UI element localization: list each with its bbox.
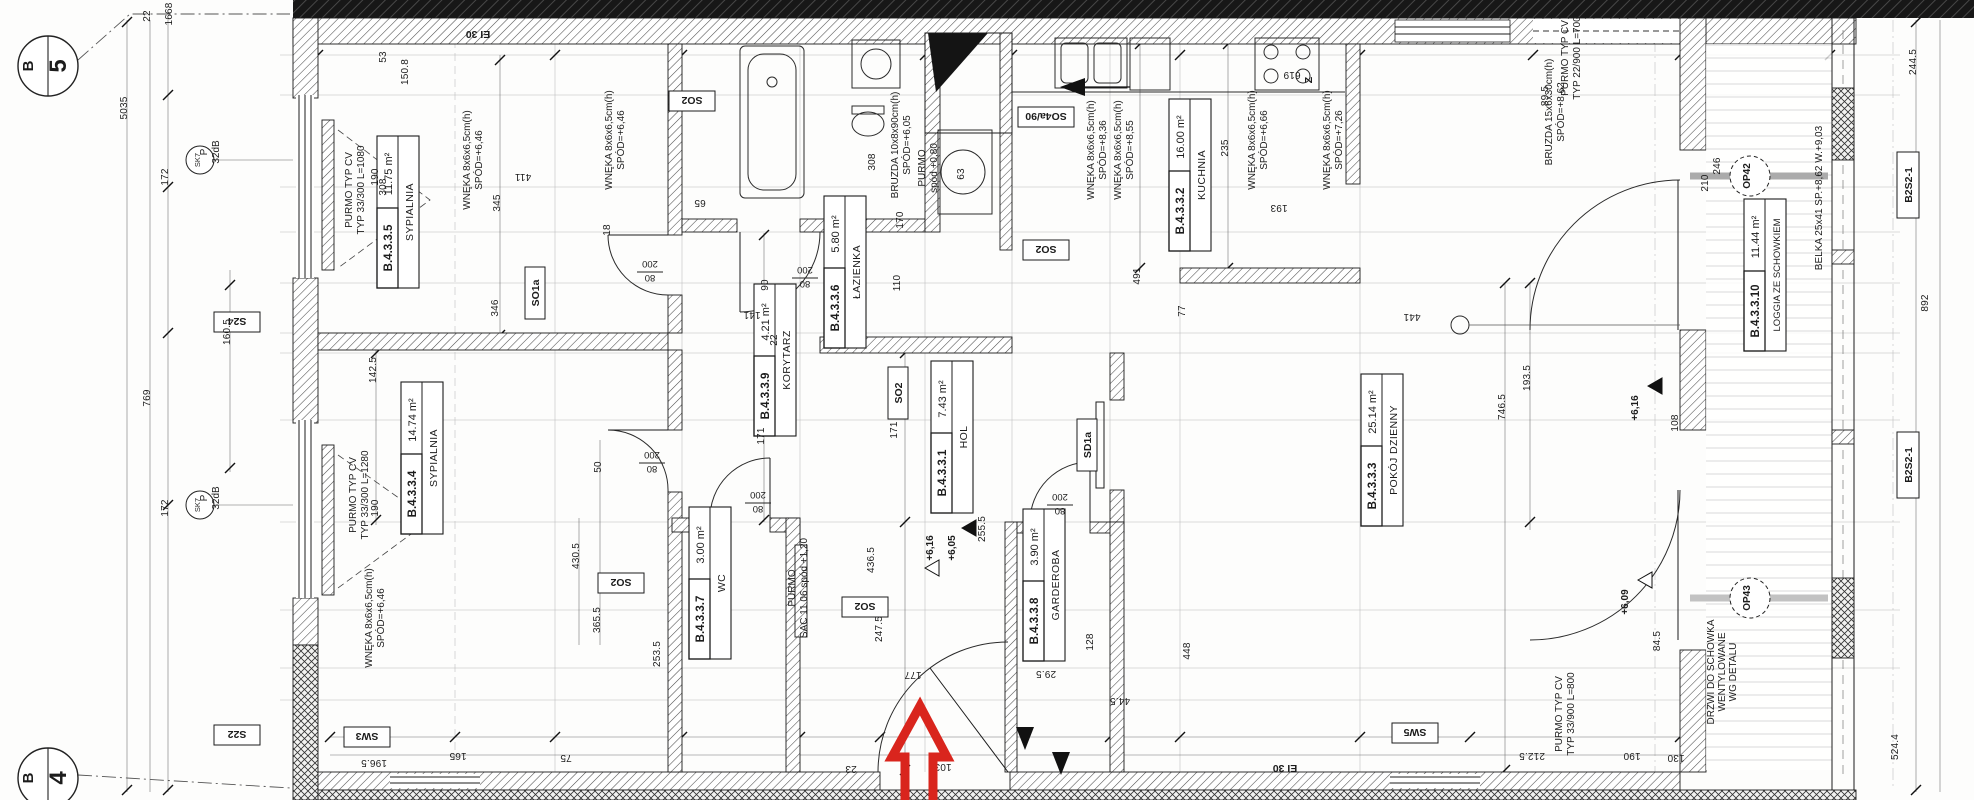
room-label-korytarz: B.4.3.3.9 4.21 m² KORYTARZ xyxy=(754,284,796,436)
window-tag: SW3 xyxy=(355,730,378,742)
floor-plan-drawing: B 5 B 4 xyxy=(0,0,1974,800)
radiator-note: PURMO xyxy=(787,569,798,606)
niche-level: SPÓD=+6,46 xyxy=(472,130,485,190)
dim-label: 193 xyxy=(1270,202,1288,213)
dim-label: 170 xyxy=(895,211,906,229)
room-name: ŁAZIENKA xyxy=(851,245,863,299)
dim-label: 160.5 xyxy=(222,319,233,345)
door-height: 200 xyxy=(644,449,660,460)
dim-label: 75 xyxy=(560,752,572,763)
door-width: 80 xyxy=(753,503,764,514)
room-id: B.4.3.3.8 xyxy=(1029,597,1041,644)
dim-label: 108 xyxy=(1670,414,1681,432)
beam-note: BELKA 25x41 SP.+8,62 W.+9,03 xyxy=(1814,125,1825,270)
room-id: B.4.3.3.6 xyxy=(830,285,842,332)
room-label-lazienka: B.4.3.3.6 5.80 m² ŁAZIENKA xyxy=(824,196,866,348)
window-tag: SW5 xyxy=(1403,726,1426,738)
radiator-type: TYP 33/300 L=1280 xyxy=(360,450,371,539)
lintel-tag-op42: OP42 xyxy=(1730,156,1770,196)
room-id: B.4.3.3.1 xyxy=(937,449,949,496)
dim-label: 110 xyxy=(892,274,903,291)
room-name: GARDEROBA xyxy=(1050,550,1062,621)
window-tag: SO2 xyxy=(1035,243,1056,255)
dim-label: 491 xyxy=(1132,267,1143,285)
dim-label: 244.5 xyxy=(1908,49,1919,75)
dim-label: 171 xyxy=(889,421,900,439)
lintel-tag: OP42 xyxy=(1742,163,1753,189)
radiator-type: TYP 22/900 L=700 xyxy=(1572,16,1583,100)
radiator-level: spód +0,80 xyxy=(929,143,940,193)
room-area: 7.43 m² xyxy=(937,380,949,418)
dim-label: 77 xyxy=(1177,305,1188,317)
level-value: +6,05 xyxy=(947,535,958,561)
room-area: 5.80 m² xyxy=(830,215,842,253)
dim-label: 90 xyxy=(760,279,771,291)
dim-label: 22 xyxy=(142,10,153,22)
door-width: 80 xyxy=(645,272,656,283)
dim-label: 5035 xyxy=(119,96,130,119)
lintel-tag: OP43 xyxy=(1742,585,1753,611)
dim-label: 89.5 xyxy=(1540,86,1551,107)
door-height: 200 xyxy=(750,489,766,500)
fire-rating-label: EI 30 xyxy=(466,28,491,40)
room-id: B.4.3.3.2 xyxy=(1175,188,1187,235)
dim-label: 172 xyxy=(160,499,171,517)
niche-level: SPÓD=+8,36 xyxy=(1096,120,1109,180)
dim-label: 22 xyxy=(769,334,780,346)
dim-label: 212.5 xyxy=(1519,750,1545,761)
niche-level: SPÓD=+6,66 xyxy=(1257,110,1270,170)
room-name: SYPIALNIA xyxy=(404,183,416,241)
dim-label: 190 xyxy=(1623,750,1641,761)
room-id: B.4.3.3.9 xyxy=(760,373,772,420)
dim-label: 436.5 xyxy=(866,547,877,573)
dim-label: 141 xyxy=(743,309,761,320)
dim-label: 308 xyxy=(378,178,389,196)
room-name: WC xyxy=(716,574,728,592)
storage-door-note: WG DETALU xyxy=(1728,643,1739,702)
radiator-type: TYP 33/900 L=800 xyxy=(1566,672,1577,756)
room-id: B.4.3.3.10 xyxy=(1750,284,1762,337)
room-name: HOL xyxy=(958,426,970,449)
floor-plan-page: B 5 B 4 xyxy=(0,0,1974,800)
dim-label: 190 xyxy=(370,499,381,517)
room-name: SYPIALNIA xyxy=(428,429,440,487)
dim-label: 23 xyxy=(845,763,857,774)
grid-letter-bottom: B xyxy=(20,772,37,783)
dim-label: 253.5 xyxy=(652,641,663,667)
dim-label: 746.5 xyxy=(1497,394,1508,420)
dim-label: 345 xyxy=(492,194,503,212)
grid-number-bottom: 4 xyxy=(45,771,72,785)
room-area: 16.00 m² xyxy=(1175,115,1187,159)
room-label-kuchnia: B.4.3.3.2 16.00 m² KUCHNIA xyxy=(1169,99,1211,251)
window-tag: SO2 xyxy=(893,382,905,403)
niche-level: SPÓD=+7,26 xyxy=(1332,110,1345,170)
dim-label: 171 xyxy=(756,427,767,445)
grid-letter-top: B xyxy=(20,60,37,71)
acoustic-note: P xyxy=(199,148,210,155)
room-area: 11.44 m² xyxy=(1750,215,1762,258)
room-area: 3.00 m² xyxy=(695,526,707,564)
dim-label: 29.5 xyxy=(1036,668,1057,679)
dim-label: 892 xyxy=(1920,294,1931,312)
chase-note: BRUZDA 10x8x90cm(h) xyxy=(890,92,901,199)
dim-label: 619 xyxy=(1283,69,1301,80)
room-id: B.4.3.3.4 xyxy=(407,470,419,517)
radiator-note: PURMO TYP CV xyxy=(1554,676,1565,752)
dim-label: 247.5 xyxy=(874,616,885,642)
room-id: B.4.3.3.5 xyxy=(383,224,395,271)
niche-level: SPÓD=+8,55 xyxy=(1123,120,1136,180)
radiator-type: TYP 33/300 L=1080 xyxy=(356,145,367,234)
room-label-sypialnia-4: B.4.3.3.4 14.74 m² SYPIALNIA xyxy=(401,382,443,534)
dim-label: 196.5 xyxy=(361,757,387,768)
dim-label: 308 xyxy=(867,153,878,171)
radiator-note: PURMO TYP CV xyxy=(344,152,355,228)
room-label-pokoj-dzienny: B.4.3.3.3 25.14 m² POKÓJ DZIENNY xyxy=(1361,374,1403,526)
acoustic-note: 32dB xyxy=(211,140,222,164)
door-height: 200 xyxy=(1052,491,1068,502)
door-tag: SD1a xyxy=(1082,432,1094,458)
niche-note: WNĘKA 8x6x6,5cm(h) xyxy=(604,90,615,189)
dim-label: 18 xyxy=(602,224,613,236)
radiator-note: PURMO TYP CV xyxy=(348,457,359,533)
dim-label: 769 xyxy=(142,389,153,407)
dim-label: 63 xyxy=(956,168,967,180)
dim-label: 411 xyxy=(514,171,531,182)
fire-rating-label: EI 30 xyxy=(1273,762,1298,774)
dim-label: 150.8 xyxy=(400,59,411,85)
room-label-loggia: B.4.3.3.10 11.44 m² LOGGIA ZE SCHOWKIEM xyxy=(1744,199,1786,351)
door-width: 80 xyxy=(647,463,658,474)
niche-note: WNĘKA 8x6x6,5cm(h) xyxy=(1113,100,1124,199)
lintel-tag-op43: OP43 xyxy=(1730,578,1770,618)
vent-tag: Z xyxy=(1303,76,1315,83)
level-value: +6,09 xyxy=(1620,589,1631,615)
section-tag: B2S2-1 xyxy=(1903,167,1915,203)
dim-label: 235 xyxy=(1220,139,1231,157)
acoustic-note: P xyxy=(199,494,210,501)
dim-label: 448 xyxy=(1182,642,1193,660)
door-height: 200 xyxy=(642,258,658,269)
room-name: KUCHNIA xyxy=(1196,150,1208,200)
niche-level: SPÓD=+6,46 xyxy=(374,588,387,648)
dim-label: 177 xyxy=(904,669,922,680)
room-name: POKÓJ DZIENNY xyxy=(1387,405,1400,495)
dim-label: 172 xyxy=(160,168,171,186)
grid-bubble-B4: B 4 xyxy=(18,748,78,800)
dim-label: 50 xyxy=(593,461,604,473)
dim-label: 53 xyxy=(378,51,389,63)
section-band-top xyxy=(293,0,1974,18)
niche-note: WNĘKA 8x6x6,5cm(h) xyxy=(1086,100,1097,199)
dim-label: 128 xyxy=(1085,633,1096,651)
storage-door-note: WENTYLOWANE xyxy=(1717,632,1728,711)
room-area: 3.90 m² xyxy=(1029,528,1041,566)
section-tag: B2S2-1 xyxy=(1903,447,1915,483)
storage-door-note: DRZWI DO SCHOWKA xyxy=(1706,619,1717,724)
room-name: KORYTARZ xyxy=(781,330,793,390)
dim-label: 1668 xyxy=(164,2,175,25)
dim-label: 165 xyxy=(449,750,467,761)
dim-label: 524.4 xyxy=(1890,734,1901,760)
level-value: +6,16 xyxy=(925,535,936,561)
niche-level: SPÓD=+6,46 xyxy=(614,110,627,170)
dim-label: 246 xyxy=(1712,157,1723,175)
dim-label: 255.5 xyxy=(977,516,988,542)
room-label-garderoba: B.4.3.3.8 3.90 m² GARDEROBA xyxy=(1023,509,1065,661)
grid-bubble-B5: B 5 xyxy=(18,36,78,96)
window-tag: SO2 xyxy=(681,94,702,106)
radiator-symbol xyxy=(322,445,334,595)
dim-label: 65 xyxy=(694,197,706,208)
room-label-sypialnia-5: B.4.3.3.5 11.75 m² SYPIALNIA xyxy=(377,136,419,288)
room-area: 25.14 m² xyxy=(1367,390,1379,434)
dim-label: 346 xyxy=(490,299,501,317)
acoustic-note: 32dB xyxy=(211,486,222,510)
door-tag: SO4a/90 xyxy=(1025,110,1067,122)
dim-label: 430.5 xyxy=(571,543,582,569)
door-width: 80 xyxy=(1055,505,1066,516)
room-label-hol: B.4.3.3.1 7.43 m² HOL xyxy=(931,361,973,513)
dim-label: 365.5 xyxy=(592,607,603,633)
chase-level: SPÓD=+6,05 xyxy=(900,115,913,175)
room-id: B.4.3.3.7 xyxy=(695,596,707,643)
room-label-wc: B.4.3.3.7 3.00 m² WC xyxy=(689,507,731,659)
radiator-note: PURMO xyxy=(917,149,928,186)
dim-label: 130 xyxy=(1667,752,1685,763)
door-height: 200 xyxy=(797,264,813,275)
level-value: +6,16 xyxy=(1630,395,1641,421)
dim-label: 193.5 xyxy=(1522,365,1533,391)
door-tag: SO1a xyxy=(530,279,542,306)
radiator-type: SAC 11 06 spód +1,20 xyxy=(799,537,810,638)
room-area: 14.74 m² xyxy=(407,398,419,442)
radiator-note: PURMO TYP CV xyxy=(1560,20,1571,96)
niche-note: WNĘKA 8x6x6,5cm(h) xyxy=(1322,90,1333,189)
chase-note: BRUZDA 15x6x30cm(h) xyxy=(1544,59,1555,166)
dim-label: 441 xyxy=(1403,311,1421,322)
dim-label: 210 xyxy=(1700,174,1711,192)
grid-number-top: 5 xyxy=(45,59,72,72)
window-tag: SO2 xyxy=(610,576,631,588)
room-name: LOGGIA ZE SCHOWKIEM xyxy=(1772,218,1783,331)
door-width: 80 xyxy=(800,278,811,289)
dim-label: 142.5 xyxy=(368,357,379,383)
room-id: B.4.3.3.3 xyxy=(1367,463,1379,510)
niche-note: WNĘKA 8x6x6,5cm(h) xyxy=(364,568,375,667)
window-tag: S22 xyxy=(228,728,247,740)
dim-label: 44.5 xyxy=(1110,695,1131,706)
niche-note: WNĘKA 8x6x6,5cm(h) xyxy=(1247,90,1258,189)
radiator-symbol xyxy=(322,120,334,270)
dim-label: 84.5 xyxy=(1652,631,1663,652)
window-tag: SO2 xyxy=(854,600,875,612)
niche-note: WNĘKA 8x6x6,5cm(h) xyxy=(462,110,473,209)
